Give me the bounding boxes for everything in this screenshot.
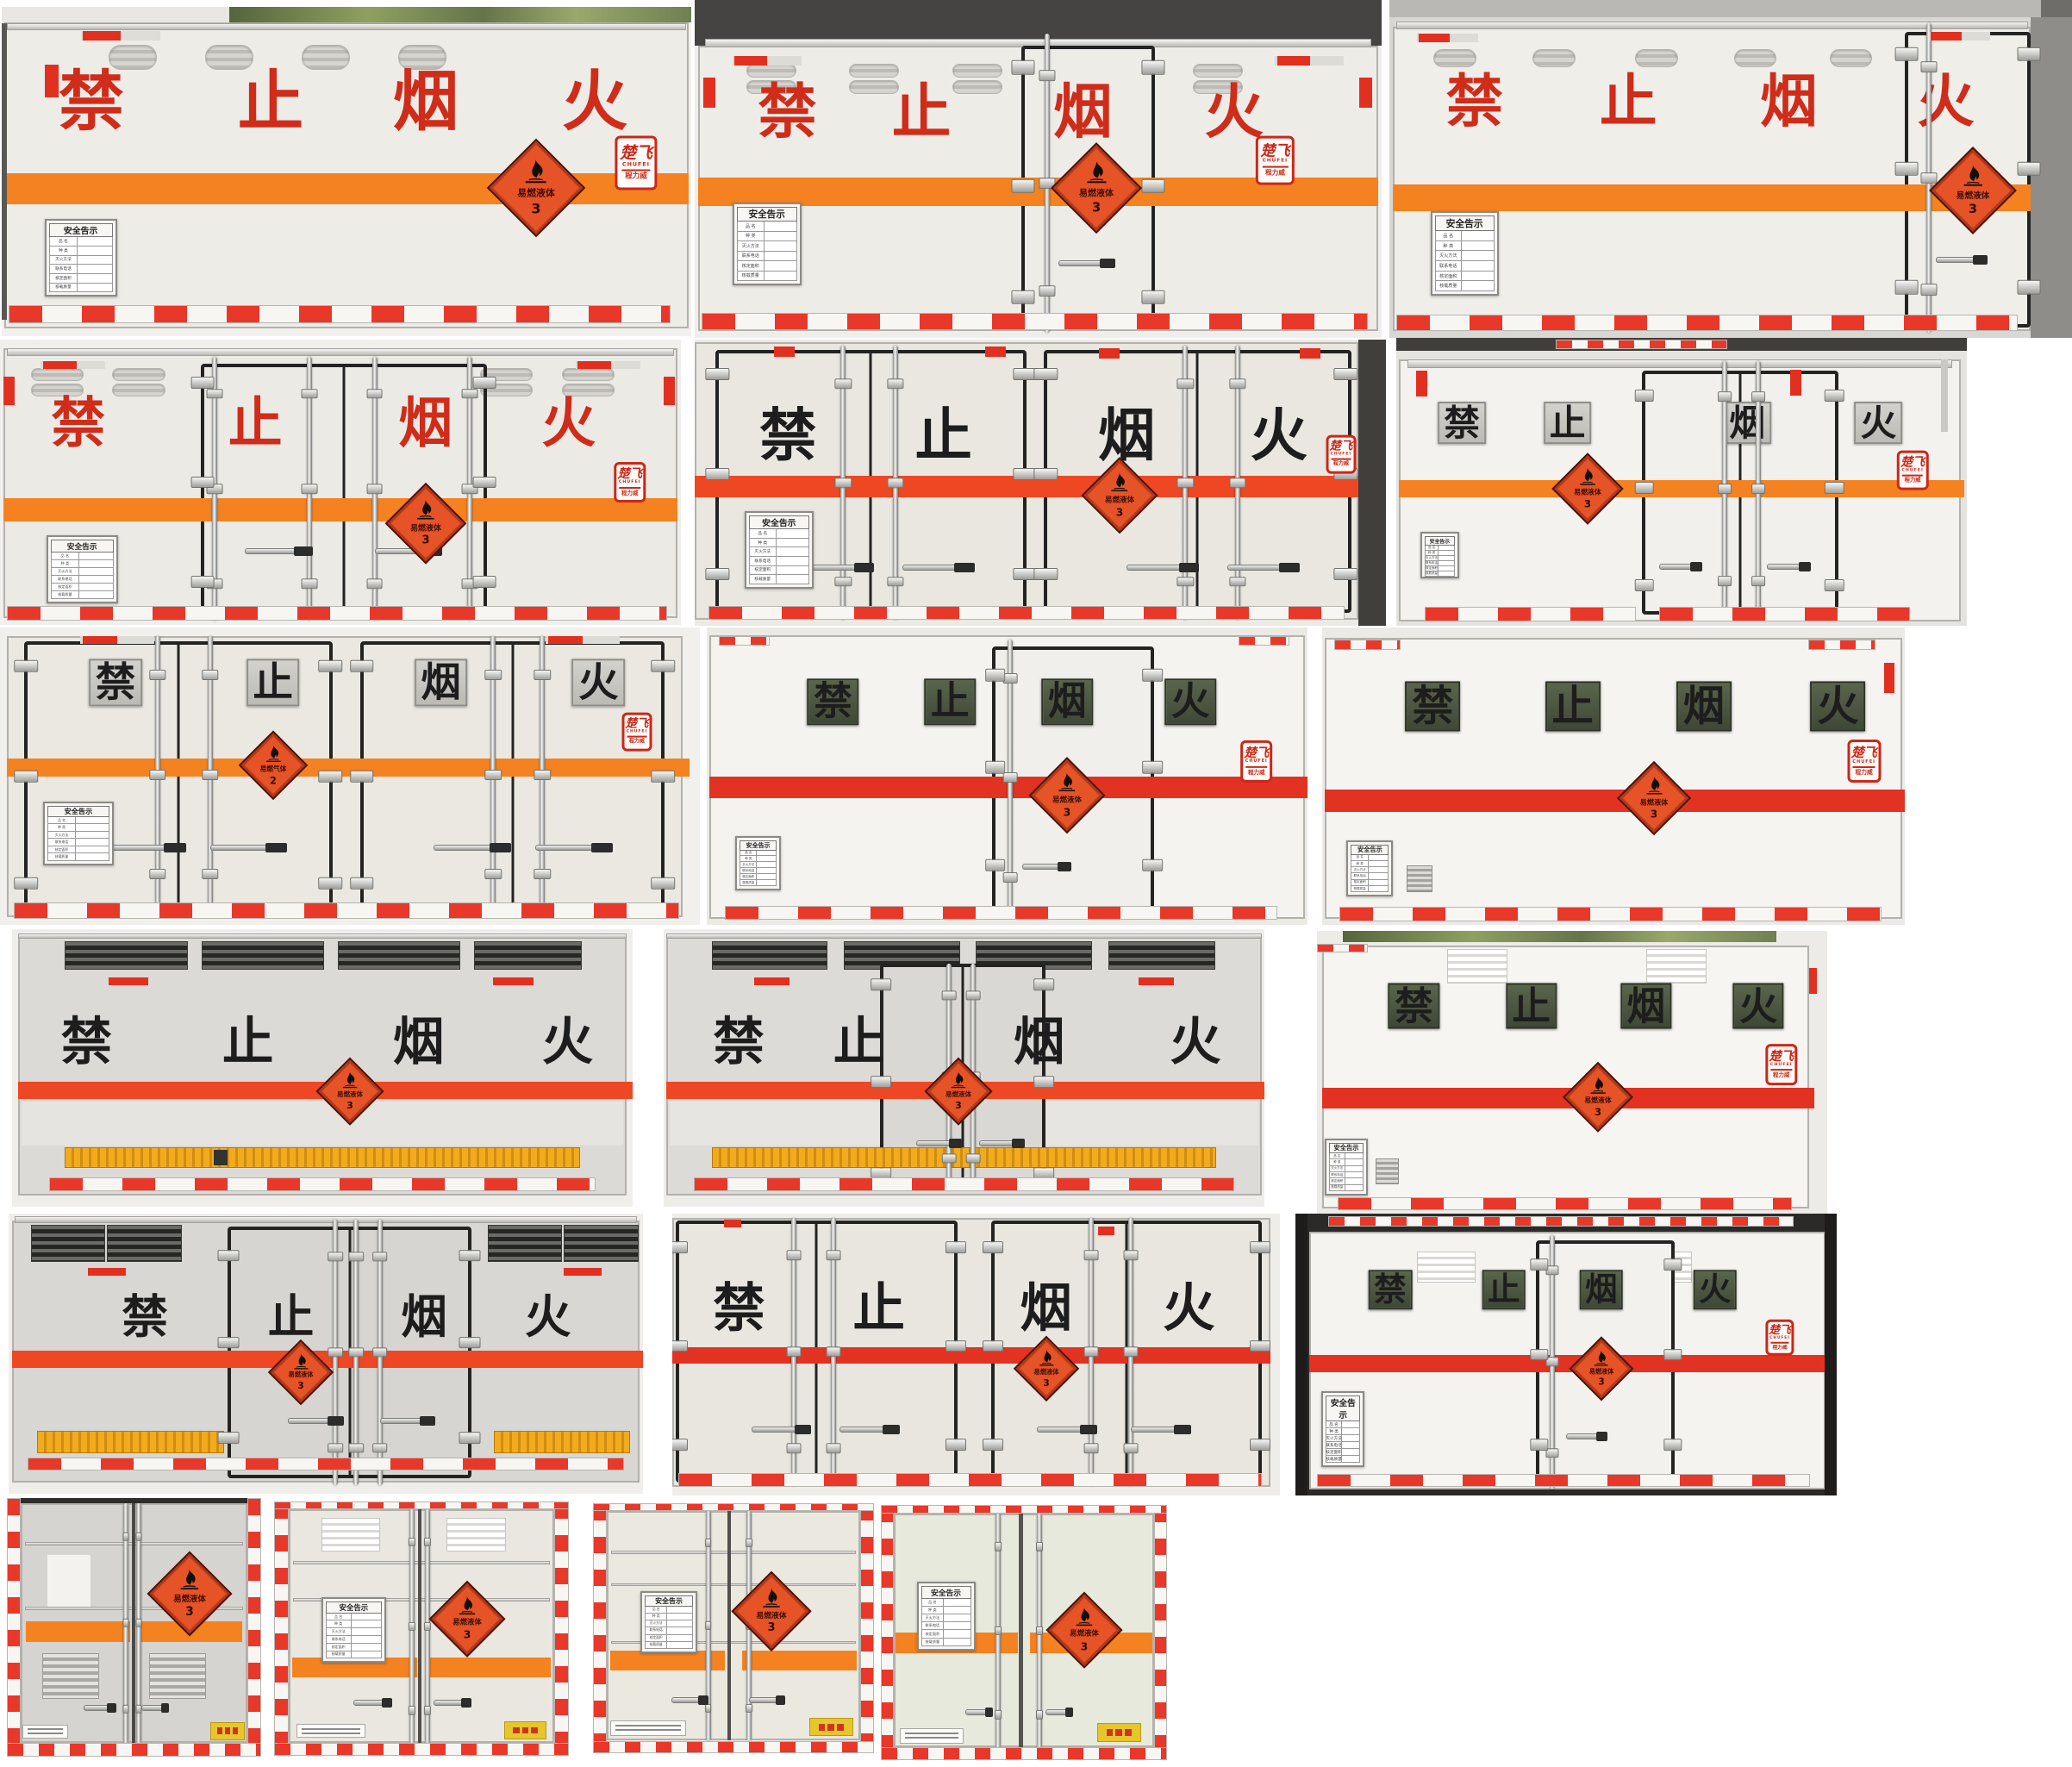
safety-plate-row-label: 核载质量 [327,1651,352,1658]
lock-rod-guide [1003,772,1018,783]
maker-name: 程力威 [629,740,645,746]
diamond-class-number: 3 [1651,809,1657,821]
warning-char-4: 火 [1250,407,1307,464]
safety-plate-title: 安全告示 [1326,1395,1360,1421]
lock-rod-guide [835,378,852,389]
safety-plate-title: 安全告示 [740,840,776,851]
safety-plate-row-label: 品 名 [1326,1421,1342,1427]
panel-seam-rail [1396,22,2028,29]
brand-logo: 楚飞CHUFEI程力威 [614,462,646,503]
safety-plate-row: 联系电话 [49,265,113,274]
brand-name: 楚飞 [1329,440,1352,453]
diamond-label: 易燃液体 [1574,488,1601,497]
marker [774,347,795,357]
safety-plate-row-value [76,846,109,853]
reflective-strip [49,1177,596,1191]
door-hinge [1530,1439,1548,1451]
safety-plate-row-label: 核载质量 [738,272,765,281]
lock-rod-guide [348,1347,364,1357]
door-handle-grip [1279,563,1300,572]
safety-plate-row: 核定面积 [1351,880,1389,886]
marker [664,377,675,405]
safety-plate-row-value [777,529,808,538]
door-hinge [1033,979,1054,991]
safety-plate-title: 安全告示 [1351,845,1389,855]
maker-name: 程力威 [1905,478,1921,484]
safety-plate-row-label: 核定面积 [50,274,78,283]
panel-overlay [47,1555,90,1607]
safety-plate-row: 种 类 [1351,861,1389,867]
safety-plate-row-value [1439,546,1454,550]
safety-plate-row: 灭火方法 [47,832,109,840]
safety-plate-row: 种 类 [749,539,809,548]
amber-reflective-band [65,1147,580,1168]
safety-plate-row-label: 联系电话 [738,252,765,261]
safety-plate-row-label: 联系电话 [1326,1442,1342,1448]
safety-plate-row-label: 灭火方法 [646,1620,666,1627]
safety-plate-row-label: 种 类 [922,1607,945,1614]
brand-latin-name: CHUFEI [1852,760,1875,765]
door-handle [1058,260,1110,266]
safety-plate-row-label: 种 类 [48,824,75,831]
hazard-stripe [1399,480,1963,496]
door-handle-grip [294,546,313,556]
door-hinge [2018,47,2041,60]
lock-rod-guide [1039,70,1055,82]
lock-rod-guide [328,1347,343,1357]
safety-plate-row-label: 灭火方法 [327,1628,352,1635]
warning-char-2: 止 [852,1282,905,1334]
lock-rod-guide [1003,872,1018,883]
safety-plate-row-label: 品 名 [1351,855,1369,860]
door-hinge [1635,579,1655,591]
door-handle-grip [1065,1708,1073,1717]
door-hinge [1635,390,1655,402]
brand-latin-name: CHUFEI [627,730,647,734]
diamond-class-number: 2 [270,775,277,787]
safety-plate-row-value [667,1627,692,1633]
diamond-class-number: 3 [1969,203,1977,216]
door-hinge [1011,178,1034,192]
flame-icon [1960,165,1987,188]
safety-plate-row-label: 联系电话 [740,868,757,873]
safety-plate-row: 种 类 [1326,1428,1360,1435]
hazard-diamond-content: 易燃液体3 [328,1069,373,1114]
photo-r6-s2: 易燃液体3安全告示品 名种 类灭火方法联系电话核定面积核载质量 [274,1502,569,1756]
door-handle-grip [1100,259,1115,268]
lock-rod-guide [366,389,383,399]
safety-plate-row: 核定面积 [1326,1449,1360,1456]
safety-plate-row-label: 灭火方法 [1436,251,1463,260]
safety-plate-row-label: 灭火方法 [52,568,79,575]
brand-name: 楚飞 [1900,456,1925,469]
vent-slot-icon [1830,49,1873,68]
door-handle-grip [698,1695,708,1705]
door-hinge [1033,1076,1054,1088]
safety-plate-row-value [1462,251,1494,260]
hazard-diamond-content: 易燃液体3 [161,1565,218,1622]
warning-char-3: 烟 [1053,84,1113,143]
marker [703,78,715,108]
photo-r2-t3: 禁止烟火易燃液体3楚飞CHUFEI程力威安全告示品 名种 类灭火方法联系电话核定… [1396,338,1967,626]
frame-bar-bottom [881,1747,1167,1760]
marker [1300,348,1320,359]
lock-rod-guide [787,1347,802,1357]
marker [43,361,78,369]
lock-rod-guide [942,990,957,1000]
lock-rod-guide [1036,1542,1043,1551]
door-hinge [651,877,675,889]
logo-divider [1902,475,1923,477]
brand-name: 楚飞 [1851,746,1877,760]
vent-louver-icon [338,941,460,970]
warning-char-2: 止 [1545,682,1601,731]
diamond-label: 易燃液体 [1052,794,1082,804]
door-handle [965,1709,991,1715]
safety-plate-title: 安全告示 [1435,215,1495,231]
safety-plate-row: 核定面积 [749,566,809,576]
manufacturer-label [610,1720,686,1735]
safety-plate-row-value [1462,241,1494,251]
marker [1019,1514,1023,1747]
frame-bar-bottom [593,1741,874,1754]
lock-rod-guide [136,1533,142,1542]
safety-plate-row-value [352,1644,381,1651]
frame-post-left [7,1498,21,1757]
lock-rod-guide [485,869,502,879]
door-hinge [14,770,38,782]
brand-logo: 楚飞CHUFEI程力威 [1240,740,1273,782]
lock-rod-guide [887,478,903,488]
safety-plate-row-label: 核载质量 [1426,571,1439,576]
safety-plate-row-label: 核定面积 [646,1635,666,1641]
lock-rod-guide [206,389,222,399]
logo-divider [1771,1069,1792,1071]
warning-char-4: 火 [571,659,625,706]
logo-divider [1263,166,1289,168]
door-handle [902,565,968,571]
diamond-label: 易燃液体 [1957,190,1990,202]
door-handle-grip [854,563,875,572]
photo-r6-s3: 易燃液体3安全告示品 名种 类灭火方法联系电话核定面积核载质量 [593,1503,874,1753]
lock-rod-guide [534,869,551,879]
safety-plate-row: 核定面积 [921,1630,971,1638]
diamond-class-number: 3 [186,1605,195,1619]
diamond-label: 易燃液体 [946,1090,971,1100]
flame-icon [263,745,284,763]
lock-rod-guide [995,1627,1002,1635]
safety-plate-title: 安全告示 [737,207,797,222]
warning-char-1: 禁 [758,84,817,143]
brand-latin-name: CHUFEI [1331,453,1351,456]
marker [418,1509,422,1743]
door-handle-grip [949,1139,962,1148]
safety-plate-row-value [1342,1456,1359,1462]
lock-rod-guide [462,389,478,399]
warning-char-1: 禁 [759,407,816,464]
safety-plate-row-value [76,839,109,846]
door-hinge [1034,568,1058,580]
safety-plate-row-label: 联系电话 [327,1636,352,1643]
safety-plate-row-value [352,1620,381,1627]
door-handle-grip [107,1703,116,1713]
door-hinge [1141,60,1164,74]
safety-plate-row-value [667,1635,692,1641]
vent-slot-icon [42,1653,98,1699]
lock-rod-guide [202,670,218,680]
marker [1277,56,1310,66]
brand-name: 楚飞 [1769,1051,1794,1064]
door-hinge [1663,1258,1682,1271]
flame-icon [1643,777,1665,796]
lock-rod-guide [534,670,551,680]
safety-plate-row: 灭火方法 [1351,867,1389,873]
background-band [1343,931,1776,942]
safety-plate-row-value [757,868,776,873]
safety-plate-row: 品 名 [1329,1153,1364,1159]
warning-sticker [504,1721,547,1739]
lock-rod-guide [1036,1627,1043,1635]
marker [1098,1227,1115,1235]
diamond-label: 易燃气体 [259,764,286,773]
door-hinge [983,1340,1003,1352]
safety-notice-plate: 安全告示品 名种 类灭火方法联系电话核定面积核载质量 [43,802,113,865]
reflective-strip [678,1473,1262,1487]
safety-plate-row-value [757,880,776,885]
brand-name: 楚飞 [617,468,642,481]
safety-plate-row-value [1369,886,1389,891]
safety-notice-plate: 安全告示品 名种 类灭火方法联系电话核定面积核载质量 [1321,1391,1364,1467]
hazard-diamond-content: 易燃液体3 [442,1593,493,1644]
door-handle [1767,564,1807,570]
door-handle [1037,1427,1091,1433]
safety-plate-row-value [78,256,111,265]
door-hinge [191,477,215,489]
amber-reflective-band [494,1431,630,1453]
brand-logo: 楚飞CHUFEI程力威 [1765,1044,1797,1085]
safety-plate-row: 灭火方法 [921,1614,971,1622]
safety-plate-row: 核载质量 [1351,886,1389,892]
safety-plate-row-label: 灭火方法 [738,241,765,251]
safety-plate-row: 核定面积 [326,1644,382,1651]
safety-plate-row: 灭火方法 [326,1628,382,1636]
safety-plate-row-label: 联系电话 [1351,873,1369,878]
hazard-diamond-content: 易燃液体3 [502,155,569,222]
hazard-diamond-content: 易燃液体3 [1574,1074,1620,1121]
warning-char-3: 烟 [1098,407,1155,464]
safety-plate-row: 核载质量 [47,853,109,861]
door-hinge [1142,859,1163,871]
warning-char-4: 火 [1810,682,1865,731]
safety-plate-row-label: 核载质量 [1330,1185,1345,1190]
frame-post-left [881,1505,894,1760]
door-hinge [350,770,374,782]
safety-plate-row-label: 灭火方法 [1426,556,1439,560]
door-hinge [1663,1349,1682,1361]
safety-plate-row-value [777,539,808,547]
safety-plate-row-value [79,576,113,583]
safety-plate-row-label: 联系电话 [1330,1172,1345,1177]
door-handle [434,845,503,851]
frame-bar-top [881,1505,1167,1514]
amber-reflective-band [712,1147,1216,1168]
door-hinge [1825,579,1844,591]
lock-rod-guide [485,670,502,680]
marker [1099,348,1120,359]
warning-char-4: 火 [1204,84,1264,143]
lock-rod-guide [787,1443,802,1452]
small-grille-box [1407,865,1432,892]
flame-icon [340,1071,361,1090]
door-handle [1566,1433,1604,1439]
vent-louver-icon [488,1225,563,1262]
hazard-diamond-content: 易燃液体3 [1024,1347,1067,1390]
door-hinge [350,660,374,672]
door-handle [1131,1427,1185,1433]
vent-louver-icon [202,941,324,970]
lock-rod-guide [123,1533,129,1542]
safety-plate-row-label: 品 名 [1330,1153,1345,1158]
safety-notice-plate: 安全告示品 名种 类灭火方法联系电话核定面积核载质量 [640,1591,696,1654]
lock-rod-guide [1718,391,1732,402]
safety-plate-row: 核载质量 [740,880,776,886]
safety-plate-row-value [1369,880,1389,885]
lock-rod-guide [328,1443,343,1452]
safety-plate-row: 核定面积 [645,1635,692,1642]
safety-plate-row-value [1342,1421,1359,1427]
door-hinge [1334,368,1357,380]
warning-char-3: 烟 [1014,1017,1065,1069]
door-hinge [983,1439,1003,1451]
lock-rod-guide [409,1538,415,1546]
safety-plate-row: 核载质量 [1435,281,1495,291]
safety-plate-row-value [352,1651,381,1658]
brand-name: 楚飞 [1769,1325,1791,1336]
vent-slot-icon [1646,949,1707,983]
door-handle-grip [1690,562,1702,571]
flame-icon [414,500,438,521]
safety-plate-row-label: 核定面积 [922,1630,945,1637]
brand-latin-name: CHUFEI [1770,1064,1793,1068]
safety-plate-row-value [1462,281,1494,290]
safety-plate-row: 联系电话 [921,1622,971,1630]
vent-slot-icon [1532,49,1576,68]
lock-rod-guide [348,1252,364,1261]
brand-logo: 楚飞CHUFEI程力威 [621,712,652,751]
lock-rod-guide [302,389,318,399]
door-handle [84,1705,114,1711]
diamond-class-number: 3 [1584,498,1591,510]
safety-notice-plate: 安全告示品 名种 类灭火方法联系电话核定面积核载质量 [735,836,780,891]
vent-slot-icon [1734,49,1777,68]
safety-plate-row-label: 品 名 [922,1599,945,1606]
safety-plate-row: 联系电话 [47,839,109,846]
safety-plate-row: 核定面积 [51,584,114,591]
safety-plate-row-label: 种 类 [1330,1159,1345,1164]
door-hinge [1895,162,1919,176]
lock-rod-guide [1177,577,1194,587]
door-handle [141,1705,167,1711]
safety-plate-row: 品 名 [645,1607,692,1614]
safety-plate-row: 种 类 [51,560,114,568]
door-hinge [2018,280,2041,294]
warning-char-1: 禁 [59,70,124,135]
photo-r5-t3: 禁止烟火易燃液体3楚飞CHUFEI程力威安全告示品 名种 类灭火方法联系电话核定… [1295,1214,1837,1495]
safety-plate-row: 核载质量 [749,575,809,584]
warning-sticker [1097,1723,1141,1742]
flame-icon [521,159,551,184]
background-band [1328,1216,1794,1226]
reflective-strip [7,606,667,621]
safety-plate-row: 核载质量 [921,1639,971,1646]
door-handle-grip [1012,1139,1025,1148]
safety-notice-plate: 安全告示品 名种 类灭火方法联系电话核定面积核载质量 [321,1597,386,1664]
diamond-label: 易燃液体 [1589,1368,1614,1377]
door-hinge [1141,178,1164,192]
safety-notice-plate: 安全告示品 名种 类灭火方法联系电话核定面积核载质量 [733,203,802,285]
safety-plate-row-value [777,575,808,584]
safety-plate-row-label: 品 名 [1426,546,1439,550]
vent-slot-icon [112,368,165,381]
safety-plate-row: 种 类 [740,856,776,862]
safety-plate-row: 核载质量 [1329,1185,1364,1191]
marker [577,361,612,369]
panel-seam-rail [666,933,1261,939]
photo-r2-t2: 禁止烟火易燃液体3楚飞CHUFEI程力威安全告示品 名种 类灭火方法联系电话核定… [695,340,1386,626]
brand-name: 楚飞 [625,718,648,730]
safety-plate-row-value [1345,1153,1363,1158]
warning-char-3: 烟 [1760,72,1818,130]
panel-seam-rail [1407,359,1952,368]
door-hinge [651,660,675,672]
frame-bar-bottom [7,1743,261,1758]
brand-latin-name: CHUFEI [1902,469,1924,473]
door-hinge [1895,280,1919,294]
safety-plate-row: 种 类 [737,232,797,242]
lock-rod-guide [1177,378,1194,389]
maker-name: 程力威 [1248,770,1265,776]
vent-slot-icon [321,1518,381,1552]
door-hinge [459,1250,481,1262]
vent-slot-icon [562,368,615,381]
maker-name: 程力威 [1773,1072,1789,1078]
safety-plate-row-label: 品 名 [48,817,75,824]
door-handle [288,1418,339,1424]
safety-plate-row-value [1369,873,1389,878]
lock-rod-guide [424,1621,431,1630]
photo-r4-t1: 禁止烟火易燃液体3 [12,929,633,1207]
warning-char-3: 烟 [398,396,452,451]
safety-plate-row: 品 名 [326,1614,382,1621]
vent-slot-icon [746,64,796,78]
marker [1416,371,1427,396]
safety-plate-row-value [765,222,796,231]
diamond-class-number: 3 [1064,805,1071,818]
door-handle [109,845,178,851]
lock-rod-guide [966,990,981,1000]
door-hinge [1530,1349,1548,1361]
diamond-label: 易燃液体 [1584,1096,1611,1105]
flame-icon [1592,1350,1612,1367]
door-handle-grip [883,1425,900,1434]
safety-plate-row: 灭火方法 [49,256,113,265]
safety-plate-title: 安全告示 [1329,1143,1364,1153]
safety-plate-row-label: 种 类 [750,539,777,547]
safety-plate-row-label: 核定面积 [1426,566,1439,571]
door-handle-grip [776,1695,786,1705]
safety-plate-row-value [1439,566,1454,571]
door-hinge [1011,60,1034,74]
